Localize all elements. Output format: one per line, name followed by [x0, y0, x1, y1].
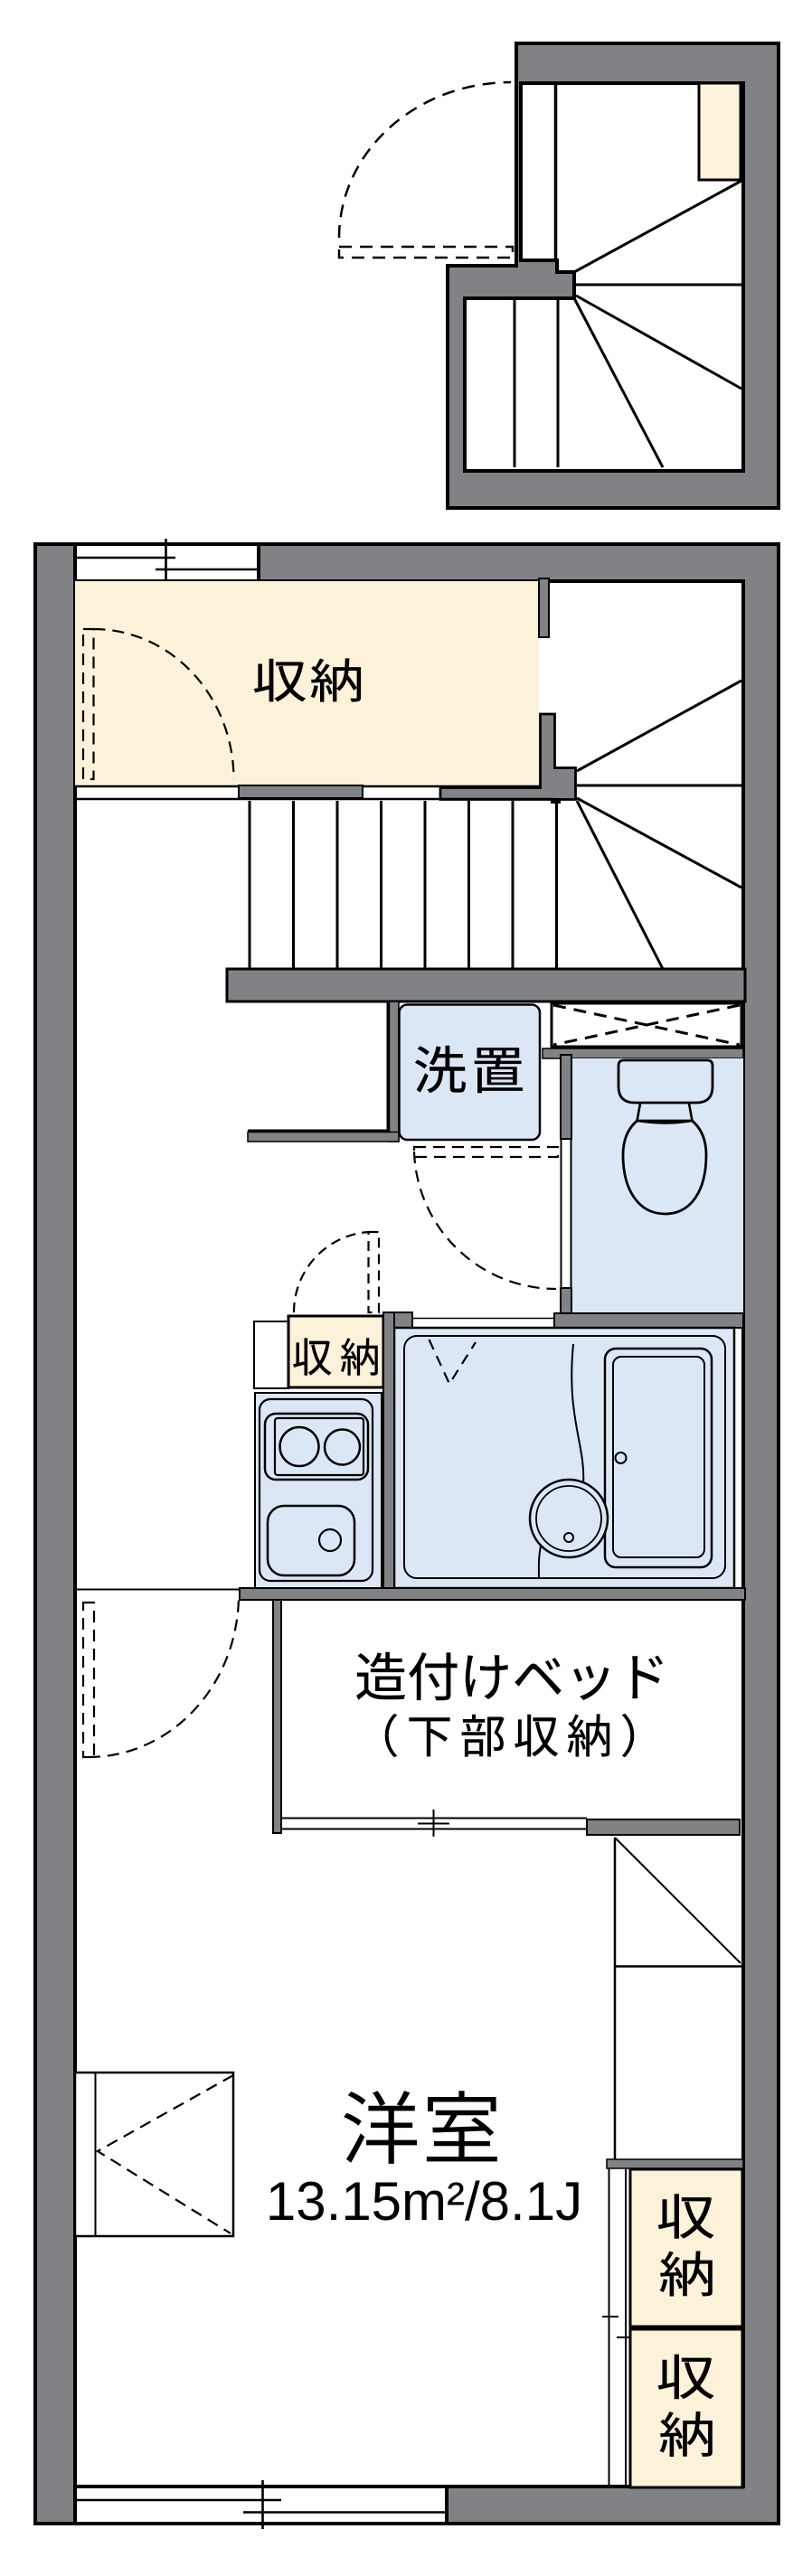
svg-text:13.15m²/8.1J: 13.15m²/8.1J — [266, 2171, 582, 2232]
